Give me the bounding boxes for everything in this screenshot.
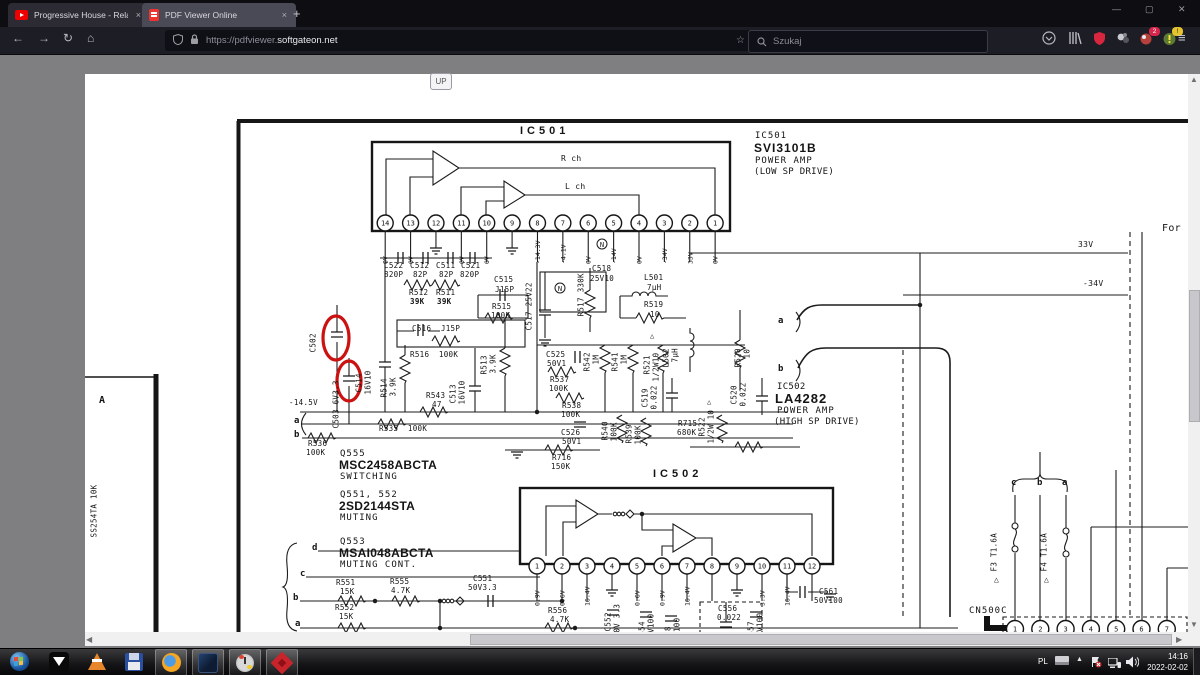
svg-text:0.9V: 0.9V bbox=[659, 590, 667, 606]
svg-text:13: 13 bbox=[406, 220, 414, 228]
svg-text:5: 5 bbox=[635, 563, 639, 571]
lock-icon[interactable] bbox=[190, 34, 199, 48]
svg-text:-34V: -34V bbox=[661, 248, 669, 264]
tab-close-icon[interactable]: × bbox=[280, 10, 289, 20]
svg-text:1: 1 bbox=[535, 563, 539, 571]
youtube-icon bbox=[15, 10, 28, 20]
taskbar-floppy-icon[interactable] bbox=[119, 649, 149, 674]
scroll-left-icon[interactable]: ◀ bbox=[86, 635, 92, 644]
taskbar-firefox-icon[interactable] bbox=[155, 649, 187, 675]
svg-text:0V: 0V bbox=[712, 256, 720, 264]
url-text: https://pdfviewer.softgateon.net bbox=[206, 35, 338, 46]
adblock-shield-icon[interactable] bbox=[1092, 31, 1108, 45]
svg-text:-14.3V: -14.3V bbox=[534, 240, 542, 264]
window-close-button[interactable]: ✕ bbox=[1178, 4, 1186, 15]
svg-text:1: 1 bbox=[713, 220, 717, 228]
svg-text:7: 7 bbox=[685, 563, 689, 571]
svg-text:12: 12 bbox=[432, 220, 440, 228]
taskbar-vlc-icon[interactable] bbox=[82, 649, 112, 674]
svg-text:N: N bbox=[558, 285, 562, 293]
show-desktop-button[interactable] bbox=[1193, 648, 1200, 675]
tab-youtube[interactable]: Progressive House - Relaxing Fo × bbox=[8, 3, 150, 27]
svg-text:11: 11 bbox=[783, 563, 791, 571]
svg-text:33V: 33V bbox=[686, 252, 694, 264]
svg-text:6: 6 bbox=[586, 220, 590, 228]
home-icon[interactable]: ⌂ bbox=[87, 31, 94, 45]
new-tab-button[interactable]: + bbox=[293, 6, 301, 21]
pdf-favicon bbox=[149, 9, 159, 21]
svg-text:3: 3 bbox=[662, 220, 666, 228]
svg-text:10: 10 bbox=[758, 563, 766, 571]
vertical-scroll-thumb[interactable] bbox=[1189, 290, 1200, 422]
svg-text:0V: 0V bbox=[636, 256, 644, 264]
search-icon bbox=[757, 37, 767, 47]
svg-text:0V: 0V bbox=[585, 256, 593, 264]
svg-text:0V: 0V bbox=[458, 256, 466, 264]
tray-clock-time[interactable]: 14:16 bbox=[1146, 652, 1188, 661]
start-button[interactable] bbox=[4, 649, 34, 674]
reload-icon[interactable]: ↻ bbox=[63, 31, 73, 45]
svg-text:2: 2 bbox=[560, 563, 564, 571]
svg-text:0.9V: 0.9V bbox=[534, 590, 542, 606]
svg-text:0V: 0V bbox=[483, 256, 491, 264]
window-maximize-button[interactable]: ▢ bbox=[1145, 4, 1154, 15]
svg-text:5: 5 bbox=[612, 220, 616, 228]
search-placeholder: Szukaj bbox=[773, 36, 802, 47]
update-warning-icon[interactable]: ! bbox=[1162, 31, 1178, 45]
tab-title: Progressive House - Relaxing Fo bbox=[34, 10, 128, 20]
annotation-ellipses bbox=[323, 316, 361, 401]
tray-language[interactable]: PL bbox=[1038, 657, 1048, 666]
horizontal-scroll-thumb[interactable] bbox=[470, 634, 1172, 645]
svg-text:-4.1V: -4.1V bbox=[559, 244, 567, 264]
bookmark-star-icon[interactable]: ☆ bbox=[736, 35, 745, 46]
svg-text:7: 7 bbox=[561, 220, 565, 228]
svg-text:9: 9 bbox=[735, 563, 739, 571]
scroll-down-icon[interactable]: ▼ bbox=[1188, 620, 1200, 629]
annotation-ellipse-1 bbox=[323, 316, 349, 360]
window-minimize-button[interactable]: — bbox=[1112, 4, 1121, 14]
svg-text:0V: 0V bbox=[382, 256, 390, 264]
pdf-page: N N 0V140V13120V110V109-14.3V8-4.1V70V6-… bbox=[85, 74, 1188, 632]
svg-text:16.4V: 16.4V bbox=[684, 586, 692, 606]
svg-text:-14V: -14V bbox=[610, 248, 618, 264]
schematic-graphics: N N 0V140V13120V110V109-14.3V8-4.1V70V6-… bbox=[85, 74, 1188, 632]
tray-network-icon[interactable] bbox=[1108, 656, 1121, 674]
svg-text:0.6V: 0.6V bbox=[634, 590, 642, 606]
tracking-shield-icon[interactable] bbox=[173, 34, 183, 48]
svg-text:14: 14 bbox=[381, 220, 389, 228]
up-overlay-button[interactable]: UP bbox=[430, 73, 452, 90]
menu-icon[interactable]: ≡ bbox=[1178, 30, 1186, 45]
addon-badge: 2 bbox=[1149, 27, 1160, 36]
svg-text:3: 3 bbox=[585, 563, 589, 571]
taskbar-red-app-icon[interactable] bbox=[266, 649, 298, 675]
svg-text:11: 11 bbox=[457, 220, 465, 228]
extension-icon[interactable] bbox=[1116, 31, 1132, 45]
browser-tab-bar: Progressive House - Relaxing Fo × PDF Vi… bbox=[0, 0, 1200, 27]
tray-keyboard-icon[interactable] bbox=[1055, 656, 1069, 665]
back-icon[interactable]: ← bbox=[12, 31, 24, 45]
svg-text:3.3V: 3.3V bbox=[759, 590, 767, 606]
screen: Progressive House - Relaxing Fo × PDF Vi… bbox=[0, 0, 1200, 675]
tray-hidden-icons-icon[interactable]: ▲ bbox=[1076, 656, 1083, 663]
tray-clock-date[interactable]: 2022-02-02 bbox=[1138, 663, 1188, 672]
scroll-up-icon[interactable]: ▲ bbox=[1188, 75, 1200, 84]
svg-text:10: 10 bbox=[483, 220, 491, 228]
svg-text:0.6V: 0.6V bbox=[559, 590, 567, 606]
svg-text:0V: 0V bbox=[407, 256, 415, 264]
svg-text:8: 8 bbox=[535, 220, 539, 228]
forward-icon[interactable]: → bbox=[38, 31, 50, 45]
tab-title: PDF Viewer Online bbox=[165, 10, 237, 20]
svg-text:16.4V: 16.4V bbox=[784, 586, 792, 606]
addon-icon[interactable]: 2 bbox=[1139, 31, 1155, 45]
library-icon[interactable] bbox=[1068, 31, 1084, 45]
svg-text:8: 8 bbox=[710, 563, 714, 571]
svg-text:4: 4 bbox=[637, 220, 641, 228]
svg-text:12: 12 bbox=[808, 563, 816, 571]
pocket-icon[interactable] bbox=[1042, 31, 1058, 45]
taskbar-scheduler-icon[interactable] bbox=[229, 649, 261, 675]
url-bar[interactable]: https://pdfviewer.softgateon.net ☆ bbox=[165, 30, 753, 51]
taskbar-blue-app-icon[interactable] bbox=[192, 649, 224, 675]
svg-text:16.4V: 16.4V bbox=[584, 586, 592, 606]
scroll-right-icon[interactable]: ▶ bbox=[1176, 635, 1182, 644]
svg-text:4: 4 bbox=[610, 563, 614, 571]
svg-text:6: 6 bbox=[660, 563, 664, 571]
svg-text:9: 9 bbox=[510, 220, 514, 228]
search-box[interactable]: Szukaj bbox=[748, 30, 988, 53]
svg-text:N: N bbox=[600, 241, 604, 249]
tab-pdf-viewer[interactable]: PDF Viewer Online × bbox=[142, 3, 296, 27]
svg-text:2: 2 bbox=[688, 220, 692, 228]
tray-action-center-icon[interactable] bbox=[1090, 655, 1102, 673]
taskbar-foobar2000-icon[interactable] bbox=[44, 649, 74, 674]
